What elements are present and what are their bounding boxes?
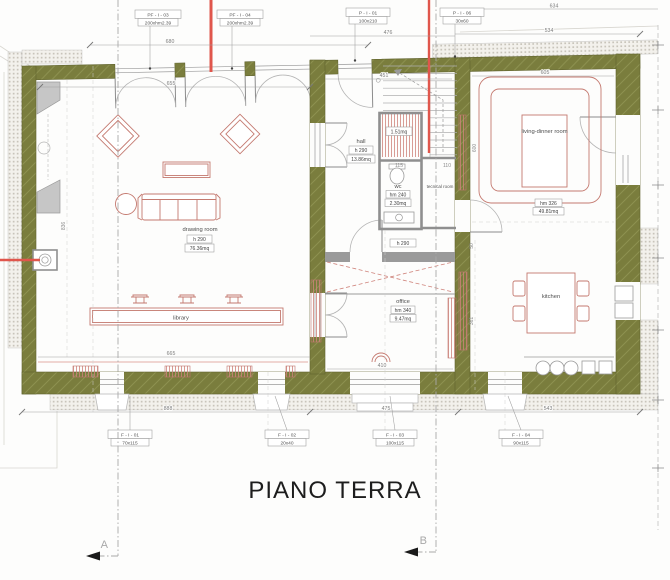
tag-size: 200xhm2.39 <box>145 20 172 26</box>
hall-area: 13.86mq <box>351 157 371 163</box>
hatch-right-upper <box>640 228 658 284</box>
section-label-a: A <box>101 539 109 551</box>
door-hall-office <box>350 220 382 252</box>
page-title: PIANO TERRA <box>248 477 421 504</box>
french-door-3 <box>255 65 311 103</box>
west-wall <box>22 66 36 394</box>
office-arch-symbol <box>372 353 390 362</box>
tag-size: 200xhm2.39 <box>227 20 254 26</box>
dim-534: 534 <box>545 28 554 34</box>
wc-area: 2.30mq <box>390 201 407 207</box>
hall-height: h 290 <box>355 148 368 154</box>
dim-888: 888 <box>164 406 173 412</box>
fireplace-lower <box>37 180 60 213</box>
tag-code: F - I - 01 <box>121 433 139 439</box>
drawing-room-area: 76.36mq <box>190 246 210 252</box>
door-drawing-hall <box>310 123 347 167</box>
wc-height: hm 240 <box>390 193 407 199</box>
tag-code: F - I - 02 <box>278 433 296 439</box>
dim-361: 361 <box>469 317 475 326</box>
room-labels: drawing room h 290 76.36mq hall h 290 13… <box>173 127 568 323</box>
tag-size: 20x40 <box>280 440 293 446</box>
storage-area: 1.51mq <box>391 130 408 136</box>
french-door-2 <box>185 66 246 107</box>
round-table <box>116 194 137 215</box>
tag-size: 30x60 <box>455 18 468 24</box>
flue-circle <box>38 142 50 154</box>
tag-code: PF - I - 03 <box>147 13 169 19</box>
label-living-dinner-room: living-dinner room <box>521 129 567 135</box>
dim-836: 836 <box>61 222 67 231</box>
dim-50: 50 <box>469 243 475 249</box>
dim-475: 475 <box>382 406 391 412</box>
window-f-i-01 <box>95 372 129 410</box>
dim-543: 543 <box>544 406 553 412</box>
label-library: library <box>173 316 189 322</box>
tag-code: P - I - 06 <box>453 11 472 17</box>
label-tecnical-room: tecnical room <box>427 184 454 189</box>
drawing-room-height: h 290 <box>193 237 206 243</box>
door-hall-living <box>455 200 502 232</box>
office-top-wall <box>325 252 455 262</box>
french-door-1 <box>115 68 176 109</box>
dim-476: 476 <box>384 30 393 36</box>
furniture <box>38 77 614 377</box>
tag-size: 100x210 <box>359 18 378 24</box>
dim-600: 600 <box>472 144 478 153</box>
dim-451: 451 <box>380 73 389 79</box>
tag-code: F - I - 04 <box>512 433 530 439</box>
kitchen-counter <box>524 357 614 375</box>
hatch-right-lower <box>640 320 658 394</box>
dim-605: 605 <box>541 70 550 76</box>
armchair-2 <box>220 114 260 154</box>
tag-size: 70x115 <box>122 440 138 446</box>
label-wc: wc <box>393 184 401 190</box>
dim-665: 665 <box>167 351 176 357</box>
dim-634: 634 <box>550 4 559 10</box>
dim-110: 110 <box>443 163 451 169</box>
window-kitchen <box>483 372 527 410</box>
hatch-top-left <box>22 50 82 64</box>
hatch-left <box>8 52 22 348</box>
section-label-b: B <box>420 535 427 547</box>
living-area: 49.81mq <box>539 209 559 215</box>
exterior-hatch <box>8 50 658 410</box>
east-wall <box>616 54 640 394</box>
tag-size: 90x115 <box>513 440 529 446</box>
tag-code: F - I - 03 <box>386 433 404 439</box>
beam-cross-brace <box>327 262 453 292</box>
tag-size: 100x115 <box>386 440 404 446</box>
kitchen-table-set <box>513 273 589 333</box>
tag-code: PF - I - 04 <box>229 13 251 19</box>
dim-655: 655 <box>167 81 176 87</box>
hall-lower-height: h 290 <box>397 241 410 247</box>
office-zone <box>325 252 455 362</box>
dim-410: 410 <box>378 363 387 369</box>
floor-plan-sheet: 680 655 451 476 534 634 605 665 410 888 … <box>0 0 670 580</box>
dim-680: 680 <box>166 39 175 45</box>
sofa <box>138 194 220 220</box>
floor-plan-drawing: 680 655 451 476 534 634 605 665 410 888 … <box>0 0 670 580</box>
section-arrow-a <box>86 552 100 561</box>
label-drawing-room: drawing room <box>182 227 217 233</box>
label-office: office <box>396 299 410 305</box>
office-area: 9.47mq <box>395 317 412 323</box>
wc-sink <box>384 212 414 223</box>
section-arrow-b <box>404 548 418 557</box>
walls <box>22 54 640 394</box>
office-height: hm 340 <box>395 308 412 314</box>
living-table <box>522 115 567 187</box>
library-stools <box>131 295 243 303</box>
tag-pf-i-04: PF - I - 04 200xhm2.39 <box>217 10 263 70</box>
toilet <box>390 168 404 184</box>
window-2 <box>253 372 290 410</box>
label-hall: hall <box>356 139 365 145</box>
living-height: hm 326 <box>540 201 557 207</box>
label-kitchen: kitchen <box>542 294 560 300</box>
dim-115: 115 <box>395 163 403 169</box>
tag-code: P - I - 01 <box>359 11 378 17</box>
kitchen-sink-east <box>612 282 640 320</box>
